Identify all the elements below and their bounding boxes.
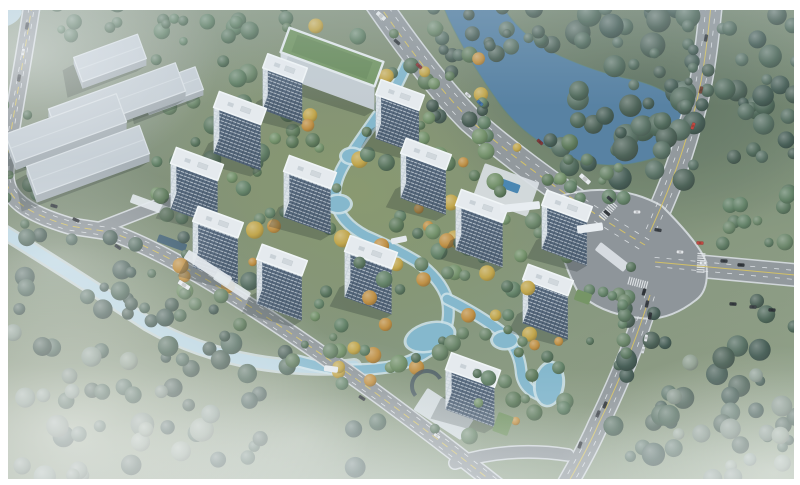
- scene: [0, 0, 800, 485]
- frame-margin-right: [794, 0, 800, 485]
- scene-canvas: [0, 0, 800, 485]
- frame-margin-bottom: [0, 479, 800, 485]
- aerial-masterplan-rendering: [0, 0, 800, 485]
- scene-svg: [0, 0, 800, 485]
- frame-margin-top: [0, 0, 800, 10]
- frame-margin-left: [0, 0, 8, 485]
